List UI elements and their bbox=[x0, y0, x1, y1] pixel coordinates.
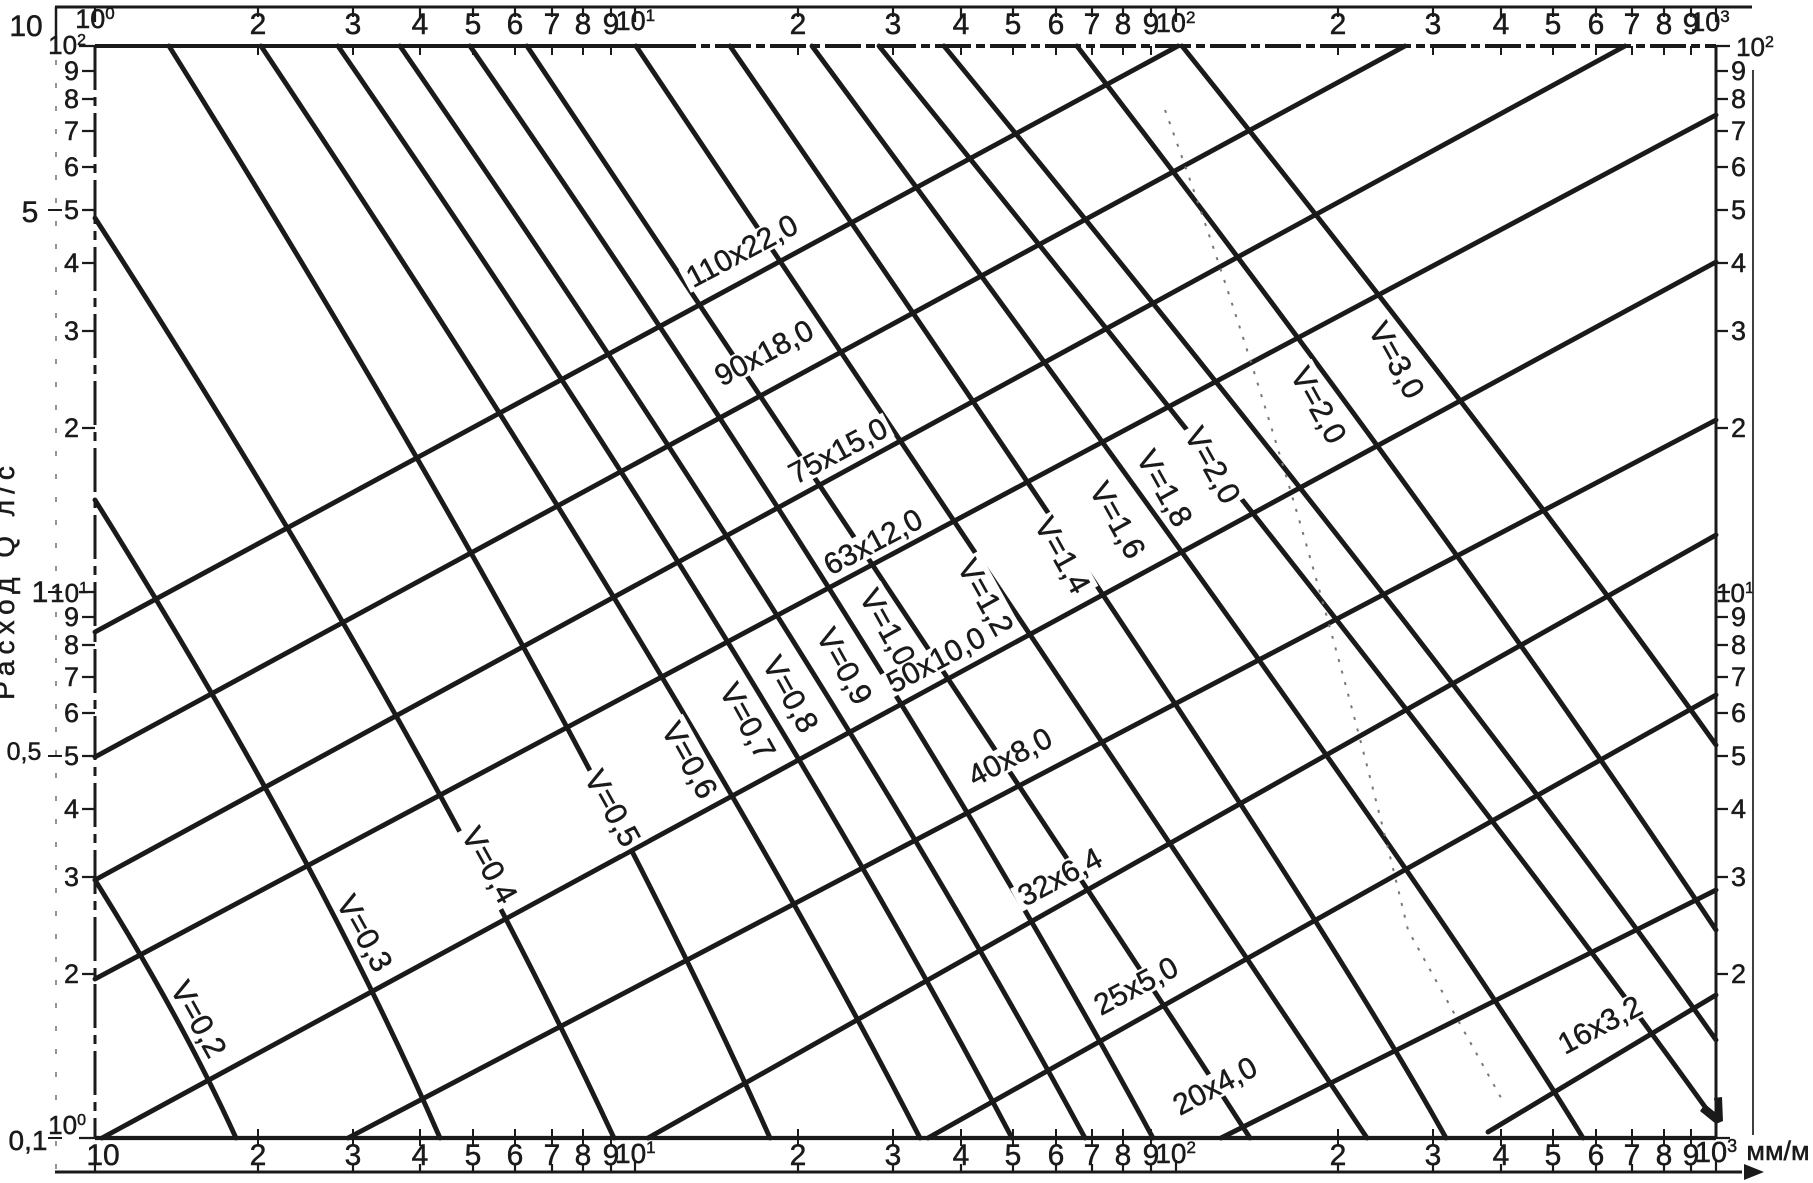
svg-text:4: 4 bbox=[64, 248, 79, 278]
svg-text:8: 8 bbox=[1656, 1139, 1673, 1172]
svg-text:5: 5 bbox=[1005, 1139, 1022, 1172]
svg-text:Расход Q л/с: Расход Q л/с bbox=[0, 460, 20, 700]
svg-text:6: 6 bbox=[1731, 152, 1746, 182]
svg-text:6: 6 bbox=[64, 698, 79, 728]
svg-text:4: 4 bbox=[1493, 8, 1510, 41]
svg-text:2: 2 bbox=[1731, 413, 1746, 443]
svg-text:2: 2 bbox=[250, 1139, 267, 1172]
svg-text:2: 2 bbox=[790, 8, 807, 41]
svg-text:5: 5 bbox=[22, 196, 39, 229]
svg-text:3: 3 bbox=[64, 862, 79, 892]
svg-text:8: 8 bbox=[1731, 84, 1746, 114]
svg-text:6: 6 bbox=[1048, 8, 1065, 41]
svg-text:4: 4 bbox=[64, 794, 79, 824]
svg-text:6: 6 bbox=[1588, 1139, 1605, 1172]
svg-text:3: 3 bbox=[885, 8, 902, 41]
svg-text:8: 8 bbox=[575, 1139, 592, 1172]
svg-text:7: 7 bbox=[64, 662, 79, 692]
svg-text:6: 6 bbox=[507, 8, 524, 41]
svg-text:мм/м: мм/м bbox=[1746, 1136, 1809, 1166]
svg-text:3: 3 bbox=[1731, 862, 1746, 892]
svg-text:6: 6 bbox=[64, 152, 79, 182]
svg-text:8: 8 bbox=[1656, 8, 1673, 41]
svg-text:7: 7 bbox=[1084, 1139, 1101, 1172]
svg-text:7: 7 bbox=[1731, 662, 1746, 692]
svg-text:5: 5 bbox=[1545, 8, 1562, 41]
svg-text:2: 2 bbox=[1330, 8, 1347, 41]
svg-text:7: 7 bbox=[64, 116, 79, 146]
svg-text:7: 7 bbox=[544, 8, 561, 41]
svg-text:6: 6 bbox=[1731, 698, 1746, 728]
svg-text:3: 3 bbox=[64, 316, 79, 346]
svg-text:0,5: 0,5 bbox=[7, 738, 42, 766]
svg-text:8: 8 bbox=[1731, 630, 1746, 660]
svg-text:5: 5 bbox=[1731, 741, 1746, 771]
svg-text:2: 2 bbox=[250, 8, 267, 41]
svg-text:0,1: 0,1 bbox=[9, 1125, 48, 1156]
svg-text:1: 1 bbox=[32, 576, 49, 609]
svg-text:4: 4 bbox=[412, 8, 429, 41]
svg-text:6: 6 bbox=[507, 1139, 524, 1172]
svg-text:5: 5 bbox=[465, 8, 482, 41]
svg-text:4: 4 bbox=[412, 1139, 429, 1172]
svg-text:5: 5 bbox=[1731, 195, 1746, 225]
svg-text:8: 8 bbox=[64, 630, 79, 660]
svg-text:5: 5 bbox=[465, 1139, 482, 1172]
svg-text:2: 2 bbox=[1330, 1139, 1347, 1172]
svg-text:8: 8 bbox=[1115, 1139, 1132, 1172]
svg-text:2: 2 bbox=[64, 959, 79, 989]
svg-text:10: 10 bbox=[86, 1139, 119, 1172]
svg-text:8: 8 bbox=[64, 84, 79, 114]
svg-text:7: 7 bbox=[1084, 8, 1101, 41]
svg-text:4: 4 bbox=[953, 8, 970, 41]
svg-text:2: 2 bbox=[1731, 959, 1746, 989]
svg-text:10: 10 bbox=[9, 10, 42, 43]
svg-text:7: 7 bbox=[1624, 8, 1641, 41]
svg-text:5: 5 bbox=[1005, 8, 1022, 41]
svg-text:2: 2 bbox=[790, 1139, 807, 1172]
svg-text:5: 5 bbox=[64, 741, 79, 771]
svg-text:3: 3 bbox=[345, 1139, 362, 1172]
svg-text:4: 4 bbox=[1493, 1139, 1510, 1172]
svg-text:5: 5 bbox=[64, 195, 79, 225]
svg-text:7: 7 bbox=[1731, 116, 1746, 146]
svg-text:3: 3 bbox=[345, 8, 362, 41]
svg-text:3: 3 bbox=[1425, 1139, 1442, 1172]
svg-text:9: 9 bbox=[64, 56, 79, 86]
svg-text:3: 3 bbox=[1731, 316, 1746, 346]
svg-text:7: 7 bbox=[1624, 1139, 1641, 1172]
svg-text:6: 6 bbox=[1048, 1139, 1065, 1172]
svg-text:2: 2 bbox=[64, 413, 79, 443]
svg-text:6: 6 bbox=[1588, 8, 1605, 41]
svg-text:4: 4 bbox=[1731, 248, 1746, 278]
svg-text:4: 4 bbox=[953, 1139, 970, 1172]
svg-text:3: 3 bbox=[1425, 8, 1442, 41]
svg-text:8: 8 bbox=[575, 8, 592, 41]
svg-text:8: 8 bbox=[1115, 8, 1132, 41]
svg-text:7: 7 bbox=[544, 1139, 561, 1172]
svg-text:3: 3 bbox=[885, 1139, 902, 1172]
svg-text:4: 4 bbox=[1731, 794, 1746, 824]
svg-text:5: 5 bbox=[1545, 1139, 1562, 1172]
